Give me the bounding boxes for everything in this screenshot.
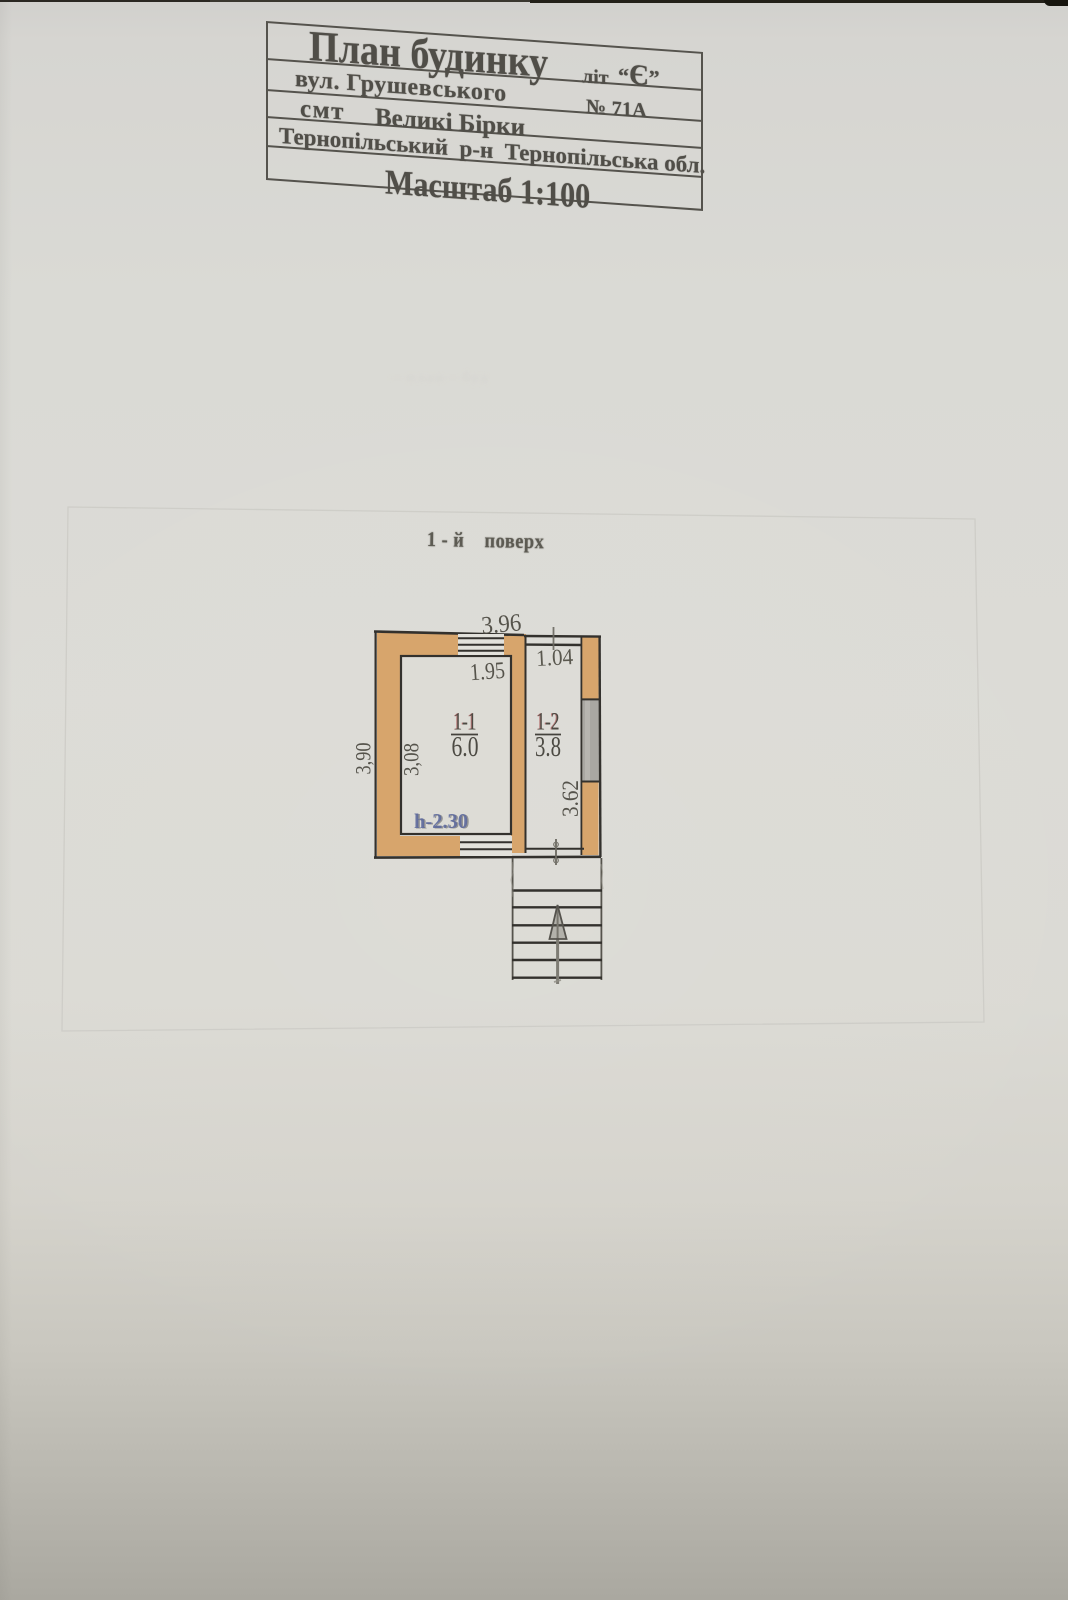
svg-text:3,08: 3,08 bbox=[399, 743, 424, 776]
svg-text:3.8: 3.8 bbox=[535, 732, 561, 763]
svg-text:h-2.30: h-2.30 bbox=[414, 809, 468, 833]
svg-text:1.04: 1.04 bbox=[535, 644, 574, 671]
svg-text:6.0: 6.0 bbox=[452, 732, 479, 763]
svg-text:3.96: 3.96 bbox=[480, 609, 522, 639]
svg-text:1.95: 1.95 bbox=[469, 658, 506, 686]
svg-text:3.62: 3.62 bbox=[558, 780, 583, 817]
svg-text:3,90: 3,90 bbox=[351, 743, 376, 775]
